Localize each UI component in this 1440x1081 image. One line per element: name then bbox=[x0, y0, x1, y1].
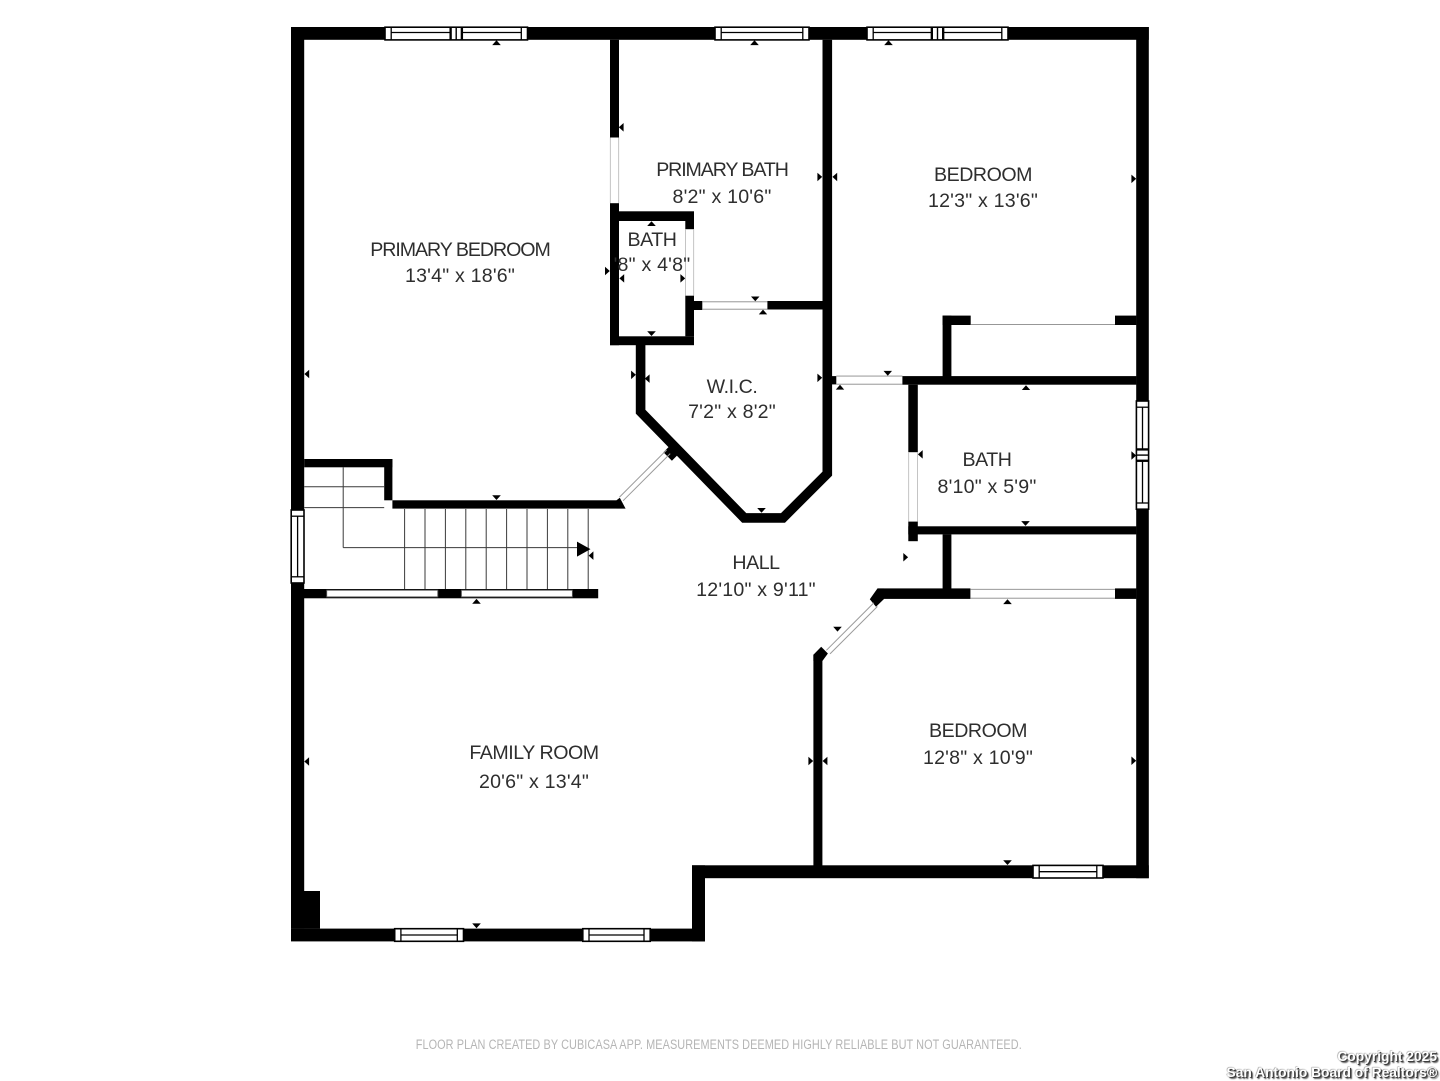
svg-text:HALL: HALL bbox=[732, 552, 780, 574]
svg-text:W.I.C.: W.I.C. bbox=[707, 376, 758, 398]
svg-text:7'2" x 8'2": 7'2" x 8'2" bbox=[688, 401, 776, 423]
svg-text:8'10" x 5'9": 8'10" x 5'9" bbox=[938, 476, 1037, 498]
svg-text:BATH: BATH bbox=[627, 229, 676, 251]
svg-text:BEDROOM: BEDROOM bbox=[934, 164, 1032, 186]
svg-text:12'3" x 13'6": 12'3" x 13'6" bbox=[928, 190, 1038, 212]
svg-text:PRIMARY BATH: PRIMARY BATH bbox=[656, 159, 788, 181]
svg-text:FAMILY ROOM: FAMILY ROOM bbox=[469, 742, 598, 764]
svg-text:BEDROOM: BEDROOM bbox=[929, 720, 1027, 742]
svg-text:13'4" x 18'6": 13'4" x 18'6" bbox=[405, 265, 515, 287]
svg-text:'8" x 4'8": '8" x 4'8" bbox=[614, 254, 691, 276]
svg-text:BATH: BATH bbox=[962, 449, 1011, 471]
svg-text:8'2" x 10'6": 8'2" x 10'6" bbox=[673, 186, 772, 208]
svg-text:12'8" x 10'9": 12'8" x 10'9" bbox=[923, 747, 1033, 769]
svg-text:12'10" x 9'11": 12'10" x 9'11" bbox=[696, 579, 816, 601]
svg-text:20'6" x 13'4": 20'6" x 13'4" bbox=[479, 771, 589, 793]
svg-text:PRIMARY BEDROOM: PRIMARY BEDROOM bbox=[370, 239, 550, 261]
